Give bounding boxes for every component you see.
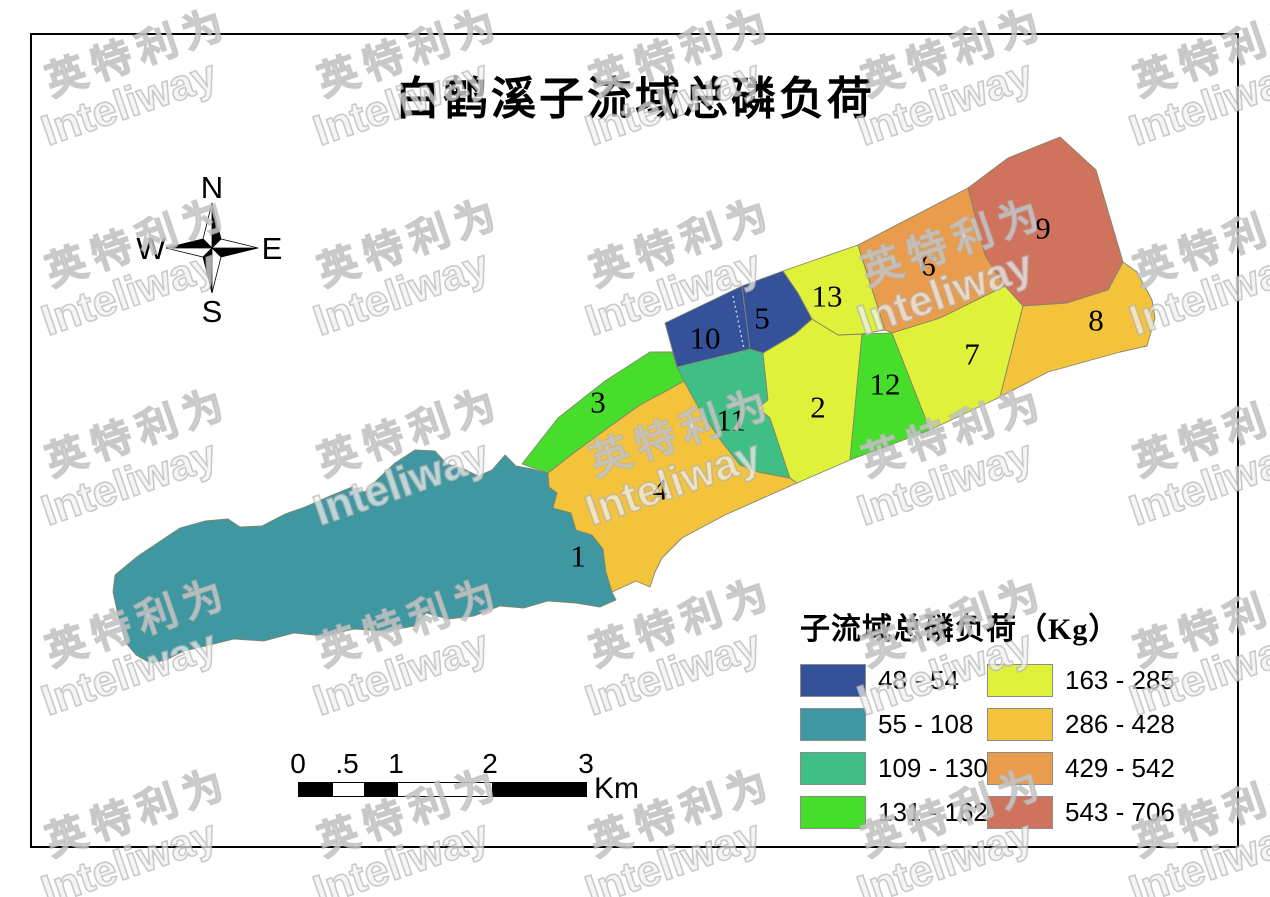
compass-label-north: N (201, 170, 223, 205)
legend-swatch-5 (987, 708, 1053, 741)
north-arrow-icon: N E S W (136, 170, 282, 329)
region-label-11: 11 (716, 403, 746, 438)
regions-layer (113, 137, 1155, 663)
region-label-4: 4 (652, 472, 668, 507)
legend-label-5: 286 - 428 (1065, 708, 1175, 741)
scale-segment (398, 783, 492, 796)
legend: 子流域总磷负荷（Kg） 48 - 5455 - 108109 - 130131 … (798, 604, 1243, 849)
legend-swatch-6 (987, 752, 1053, 785)
scale-bar: 0 .5 1 2 3 Km (276, 748, 706, 804)
legend-label-1: 55 - 108 (878, 708, 973, 741)
legend-label-0: 48 - 54 (878, 664, 959, 697)
region-label-3: 3 (590, 385, 606, 420)
legend-swatch-7 (987, 796, 1053, 829)
region-label-7: 7 (964, 337, 980, 372)
region-label-10: 10 (690, 321, 721, 356)
region-label-1: 1 (570, 539, 586, 574)
region-label-2: 2 (810, 390, 826, 425)
region-label-9: 9 (1035, 211, 1051, 246)
region-label-8: 8 (1088, 303, 1104, 338)
legend-swatch-4 (987, 664, 1053, 697)
legend-label-3: 131 - 162 (878, 796, 988, 829)
scale-segment (333, 783, 364, 796)
legend-label-4: 163 - 285 (1065, 664, 1175, 697)
compass-label-east: E (262, 231, 283, 266)
legend-title: 子流域总磷负荷（Kg） (800, 604, 1119, 648)
compass-label-west: W (136, 231, 166, 266)
scale-segment (492, 783, 586, 796)
scale-unit-label: Km (594, 772, 639, 806)
legend-label-7: 543 - 706 (1065, 796, 1175, 829)
page-title: 白鹤溪子流域总磷负荷 (0, 62, 1270, 127)
scale-segment (364, 783, 398, 796)
legend-swatch-1 (800, 708, 866, 741)
region-label-13: 13 (812, 279, 843, 314)
scale-tick-05: .5 (325, 748, 369, 780)
scale-tick-0: 0 (276, 748, 320, 780)
scale-tick-2: 2 (468, 748, 512, 780)
scale-bar-graphic (298, 782, 587, 797)
region-label-5: 5 (754, 301, 770, 336)
region-label-12: 12 (870, 367, 901, 402)
scale-segment (299, 783, 333, 796)
legend-swatch-2 (800, 752, 866, 785)
region-label-6: 6 (920, 248, 936, 283)
legend-swatch-3 (800, 796, 866, 829)
legend-label-6: 429 - 542 (1065, 752, 1175, 785)
region-polygon-1 (113, 450, 616, 663)
legend-label-2: 109 - 130 (878, 752, 988, 785)
compass-label-south: S (202, 294, 223, 329)
legend-swatch-0 (800, 664, 866, 697)
scale-tick-1: 1 (374, 748, 418, 780)
map-document: 白鹤溪子流域总磷负荷 13411212710513698 N E S W 0 .… (0, 0, 1270, 897)
